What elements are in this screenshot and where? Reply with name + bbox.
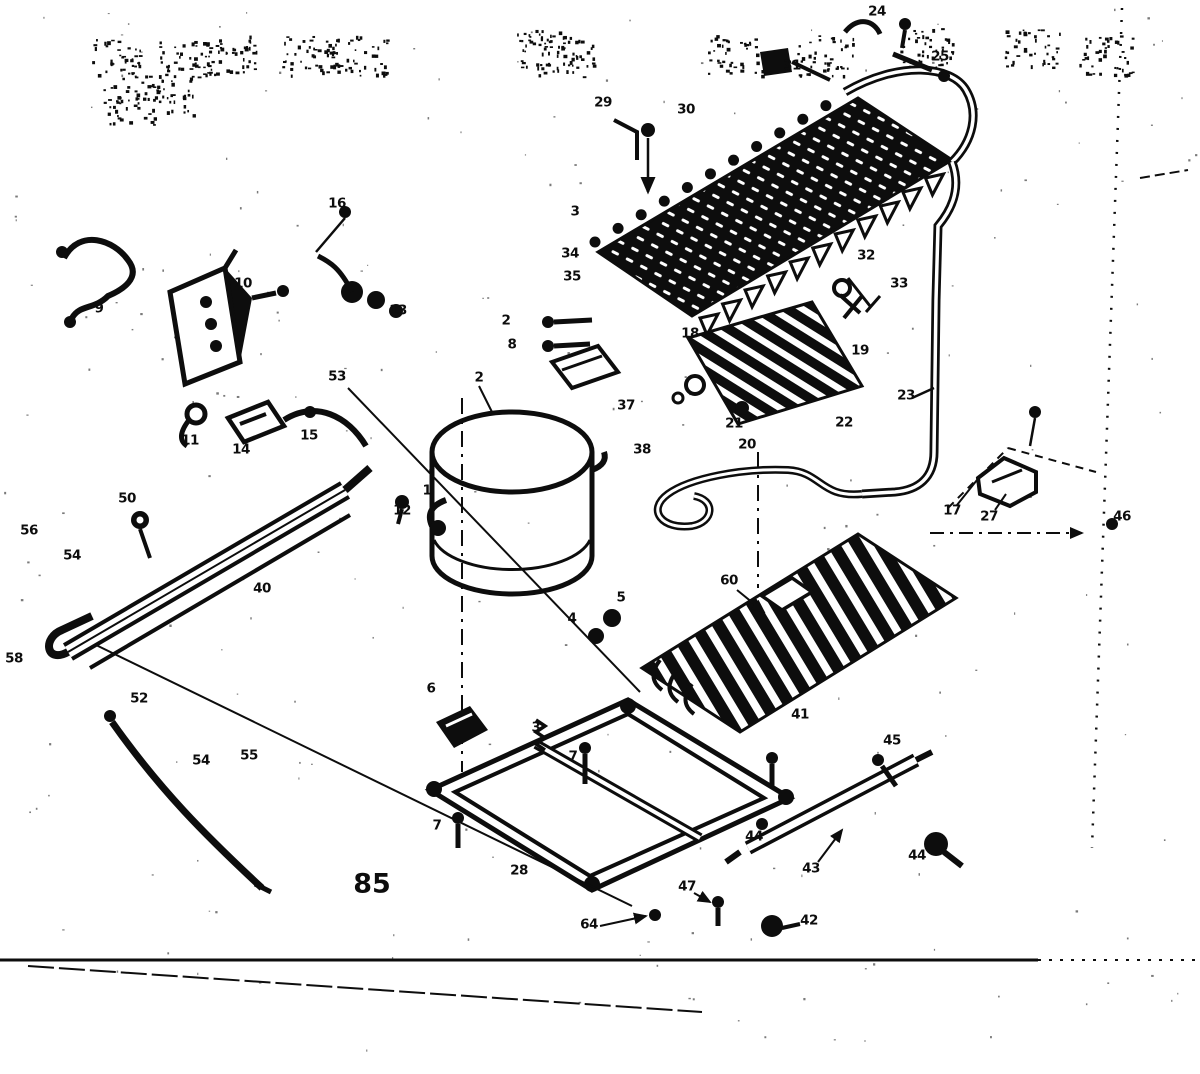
part-callout-23: 23 xyxy=(897,389,915,403)
part-callout-41: 41 xyxy=(791,708,809,722)
part-callout-54: 54 xyxy=(63,549,81,563)
compressor xyxy=(430,412,605,594)
part-callout-3: 3 xyxy=(571,205,580,219)
part-callout-60: 60 xyxy=(720,574,738,588)
part-callout-50: 50 xyxy=(118,492,136,506)
part-callout-56: 56 xyxy=(20,524,38,538)
part-callout-30: 30 xyxy=(677,103,695,117)
part-callout-7: 7 xyxy=(569,750,578,764)
part-callout-24: 24 xyxy=(868,5,886,19)
part-callout-46: 46 xyxy=(1113,510,1131,524)
part-callout-5: 5 xyxy=(617,591,626,605)
page-rule-lines xyxy=(0,8,1200,1012)
part-callout-11: 11 xyxy=(181,434,199,448)
part-callout-44: 44 xyxy=(745,830,763,844)
right-support-rail xyxy=(600,752,962,937)
part-callout-16: 16 xyxy=(328,197,346,211)
part-callout-27: 27 xyxy=(980,510,998,524)
part-callout-8: 8 xyxy=(508,338,517,352)
part-callout-31: 31 xyxy=(783,59,801,73)
part-callout-55: 55 xyxy=(240,749,258,763)
part-callout-47: 47 xyxy=(678,880,696,894)
part-callout-37: 37 xyxy=(617,399,635,413)
part-callout-42: 42 xyxy=(800,914,818,928)
part-callout-13: 13 xyxy=(389,304,407,318)
part-callout-35: 35 xyxy=(563,270,581,284)
part-callout-3: 3 xyxy=(532,721,541,735)
part-callout-43: 43 xyxy=(802,862,820,876)
part-callout-25: 25 xyxy=(931,50,949,64)
part-callout-20: 20 xyxy=(738,438,756,452)
part-callout-6: 6 xyxy=(427,682,436,696)
part-callout-2: 2 xyxy=(502,314,511,328)
part-callout-15: 15 xyxy=(300,429,318,443)
part-callout-22: 22 xyxy=(835,416,853,430)
figure-number-label: 85 xyxy=(353,869,391,900)
scan-noise-speckles xyxy=(4,9,1197,1052)
part-callout-34: 34 xyxy=(561,247,579,261)
part-callout-32: 32 xyxy=(857,249,875,263)
part-callout-64: 64 xyxy=(580,918,598,932)
part-callout-17: 17 xyxy=(943,504,961,518)
tubing-clamps-and-plate xyxy=(181,402,409,524)
part-callout-58: 58 xyxy=(5,652,23,666)
part-callout-9: 9 xyxy=(95,302,104,316)
part-callout-1: 1 xyxy=(423,484,432,498)
diagram-canvas: 2425312930163343532339101328181925311141… xyxy=(0,0,1200,1074)
parts-line-art xyxy=(0,0,1200,1074)
part-callout-18: 18 xyxy=(681,327,699,341)
part-callout-7: 7 xyxy=(433,819,442,833)
part-callout-12: 12 xyxy=(393,504,411,518)
relay-and-wiring xyxy=(56,206,403,384)
part-callout-40: 40 xyxy=(253,582,271,596)
part-callout-19: 19 xyxy=(851,344,869,358)
part-callout-33: 33 xyxy=(890,277,908,291)
part-callout-21: 21 xyxy=(725,417,743,431)
part-callout-53: 53 xyxy=(328,370,346,384)
part-callout-2: 2 xyxy=(475,371,484,385)
part-callout-52: 52 xyxy=(130,692,148,706)
part-callout-14: 14 xyxy=(232,443,250,457)
part-callout-4: 4 xyxy=(568,612,577,626)
part-callout-44: 44 xyxy=(908,849,926,863)
part-callout-54: 54 xyxy=(192,754,210,768)
part-callout-28: 28 xyxy=(510,864,528,878)
part-callout-45: 45 xyxy=(883,734,901,748)
part-callout-38: 38 xyxy=(633,443,651,457)
condenser-panel xyxy=(642,534,956,732)
part-callout-10: 10 xyxy=(234,277,252,291)
part-callout-29: 29 xyxy=(594,96,612,110)
left-drain-rail xyxy=(49,468,370,892)
